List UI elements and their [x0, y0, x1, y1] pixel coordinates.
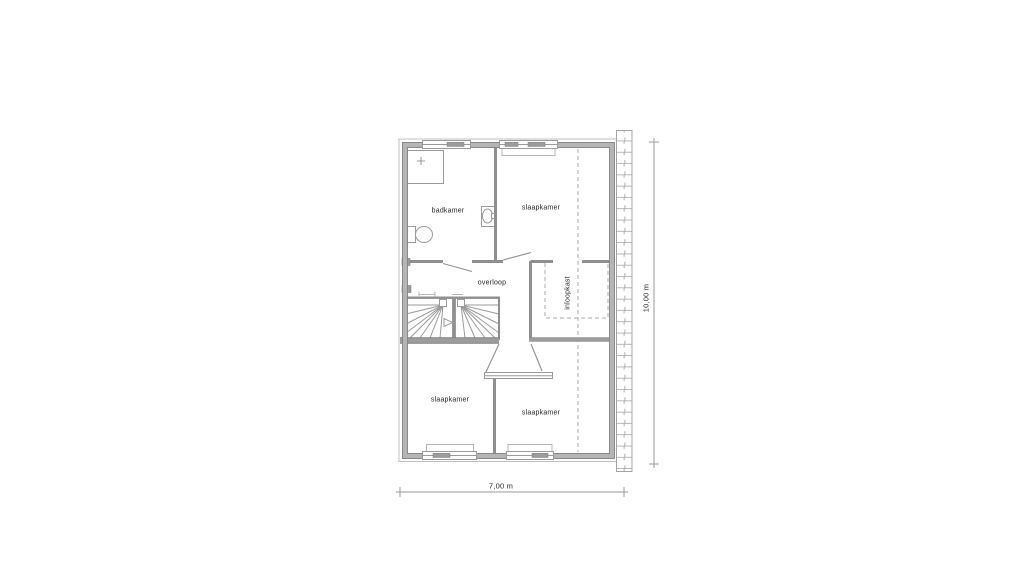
bathroom-door	[443, 264, 472, 272]
window-top-right	[500, 141, 558, 156]
window-bottom-right	[507, 445, 554, 460]
toilet-icon	[408, 227, 433, 243]
room-label-badkamer: badkamer	[432, 208, 465, 215]
masonry-strip	[617, 131, 633, 472]
room-label-slaapkamer-bottom-left: slaapkamer	[431, 397, 469, 404]
floor-plan-canvas: badkamer slaapkamer overloop inloopkast …	[0, 0, 1024, 580]
room-label-slaapkamer-bottom-right: slaapkamer	[522, 410, 560, 417]
washbasin-icon	[482, 207, 495, 227]
window-bottom-left	[423, 445, 477, 460]
height-dimension-line	[649, 138, 659, 468]
room-label-inloopkast: inloopkast	[565, 276, 572, 310]
shower-icon	[408, 151, 444, 184]
height-dimension-label: 10,00 m	[642, 284, 651, 313]
top-bedroom-door	[503, 253, 531, 261]
walk-in-closet-outline	[545, 263, 608, 318]
bottom-right-bedroom-door	[531, 344, 542, 371]
staircase	[400, 292, 500, 344]
window-top-left	[423, 141, 471, 149]
floor-plan-drawing	[0, 0, 1024, 580]
width-dimension-label: 7,00 m	[489, 482, 513, 491]
bottom-left-bedroom-door	[486, 344, 499, 372]
room-label-overloop: overloop	[478, 280, 506, 287]
room-label-slaapkamer-top: slaapkamer	[522, 205, 560, 212]
